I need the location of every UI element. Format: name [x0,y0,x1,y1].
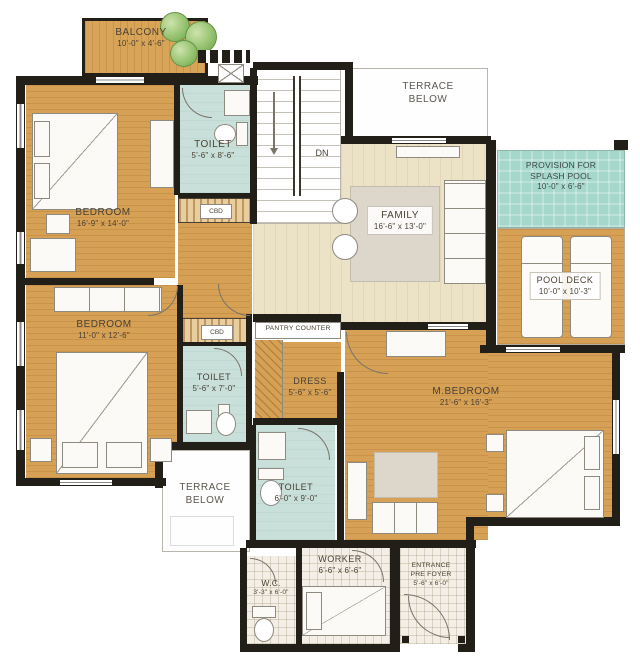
pillow [34,163,50,199]
vent-strip [198,50,250,63]
wardrobe [150,120,174,188]
foyer-label: ENTRANCE PRE FOYER 5'-6" x 6'-0" [410,562,451,588]
floor-plan: BALCONY 10'-0" x 4'-6" BEDROOM 16'-9" x … [0,0,640,656]
balcony-label: BALCONY 10'-0" x 4'-6" [115,26,166,49]
tree-icon [170,40,198,67]
toilet-mid-label: TOILET 5'-6" x 7'-0" [193,372,236,394]
wall [240,548,247,652]
pillow [584,436,600,470]
pillow [62,442,98,468]
pantry-label: PANTRY COUNTER [265,325,330,334]
terrace-top-label: TERRACE BELOW [402,80,453,106]
side-table [46,214,70,234]
window [17,232,24,264]
bedroom-mid-label: BEDROOM 11'-0" x 12'-6" [76,318,131,341]
wall [178,342,250,346]
wall [22,278,154,285]
wall [466,540,475,644]
wall [470,517,620,526]
terrace-bottom-label: TERRACE BELOW [179,481,230,507]
wall [345,62,353,140]
wall [160,442,252,450]
washbasin [186,410,212,434]
master-bedroom-label: M.BEDROOM 21'-6" x 16'-3" [432,385,499,408]
pillow [306,592,322,630]
desk [386,331,446,357]
stair-arrow-line [273,92,275,148]
wall [614,140,628,150]
worker-label: WORKER 6'-6" x 6'-6" [318,554,362,576]
wc-tank [258,468,284,480]
wall [458,644,475,652]
splash-pool-label: PROVISION FOR SPLASH POOL 10'-0" x 6'-6" [526,160,596,192]
toilet-top-label: TOILET 5'-6" x 8'-6" [192,138,235,161]
wall [178,193,252,198]
wall [253,314,341,322]
wall [250,425,256,543]
bedroom-top-label: BEDROOM 16'-9" x 14'-0" [75,206,130,229]
wall [296,540,476,548]
toilet-master-label: TOILET 6'-0" x 9'-0" [275,482,318,504]
wall [174,85,180,195]
wall [390,548,400,644]
stair-arrow-down [270,148,278,155]
window [17,322,24,366]
dress-label: DRESS 5'-6" x 5'-6" [289,376,332,398]
washbasin [258,432,286,460]
wall [466,517,474,548]
pillow [106,442,142,468]
pool-deck-label: POOL DECK 10'-0" x 10'-3" [530,272,601,300]
wc-tank [236,122,248,146]
window [17,410,24,450]
window [17,104,24,148]
stairs-dn-label: DN [316,148,329,160]
window [506,347,560,352]
wall [337,372,344,540]
rug [374,452,438,498]
pantry-counter-hatch [255,340,283,420]
wall [177,285,183,445]
shaft-marker [218,64,244,83]
door-post [458,636,465,643]
family-label: FAMILY 16'-6" x 13'-0" [367,206,433,235]
dresser [54,287,162,312]
nightstand [486,434,504,452]
sofa [444,180,486,284]
wall [250,68,257,224]
wc-bowl [254,618,274,642]
window [392,138,446,143]
pillow [34,121,50,157]
sofa [372,502,438,534]
room-family-hall [253,224,341,322]
pillow [584,476,600,510]
nightstand [150,438,172,462]
window [428,324,468,329]
console [396,146,460,158]
round-chair [332,198,358,224]
window [613,400,619,454]
desk [30,238,76,272]
wc-label: W.C. 3'-3" x 6'-0" [253,578,288,597]
wall [341,322,491,330]
tv-unit [347,462,367,520]
wall [253,418,341,425]
cbd-label: CBD [201,325,233,340]
window [60,480,112,485]
wall [253,62,353,70]
nightstand [486,494,504,512]
cbd-label: CBD [200,204,232,219]
nightstand [30,438,52,462]
stair-rail [293,76,301,196]
round-chair [332,234,358,260]
wc-tank [252,606,276,618]
terrace-outline [170,516,234,546]
washbasin [224,90,250,116]
window [96,77,144,83]
wall [240,644,400,652]
wc-bowl [216,412,236,436]
